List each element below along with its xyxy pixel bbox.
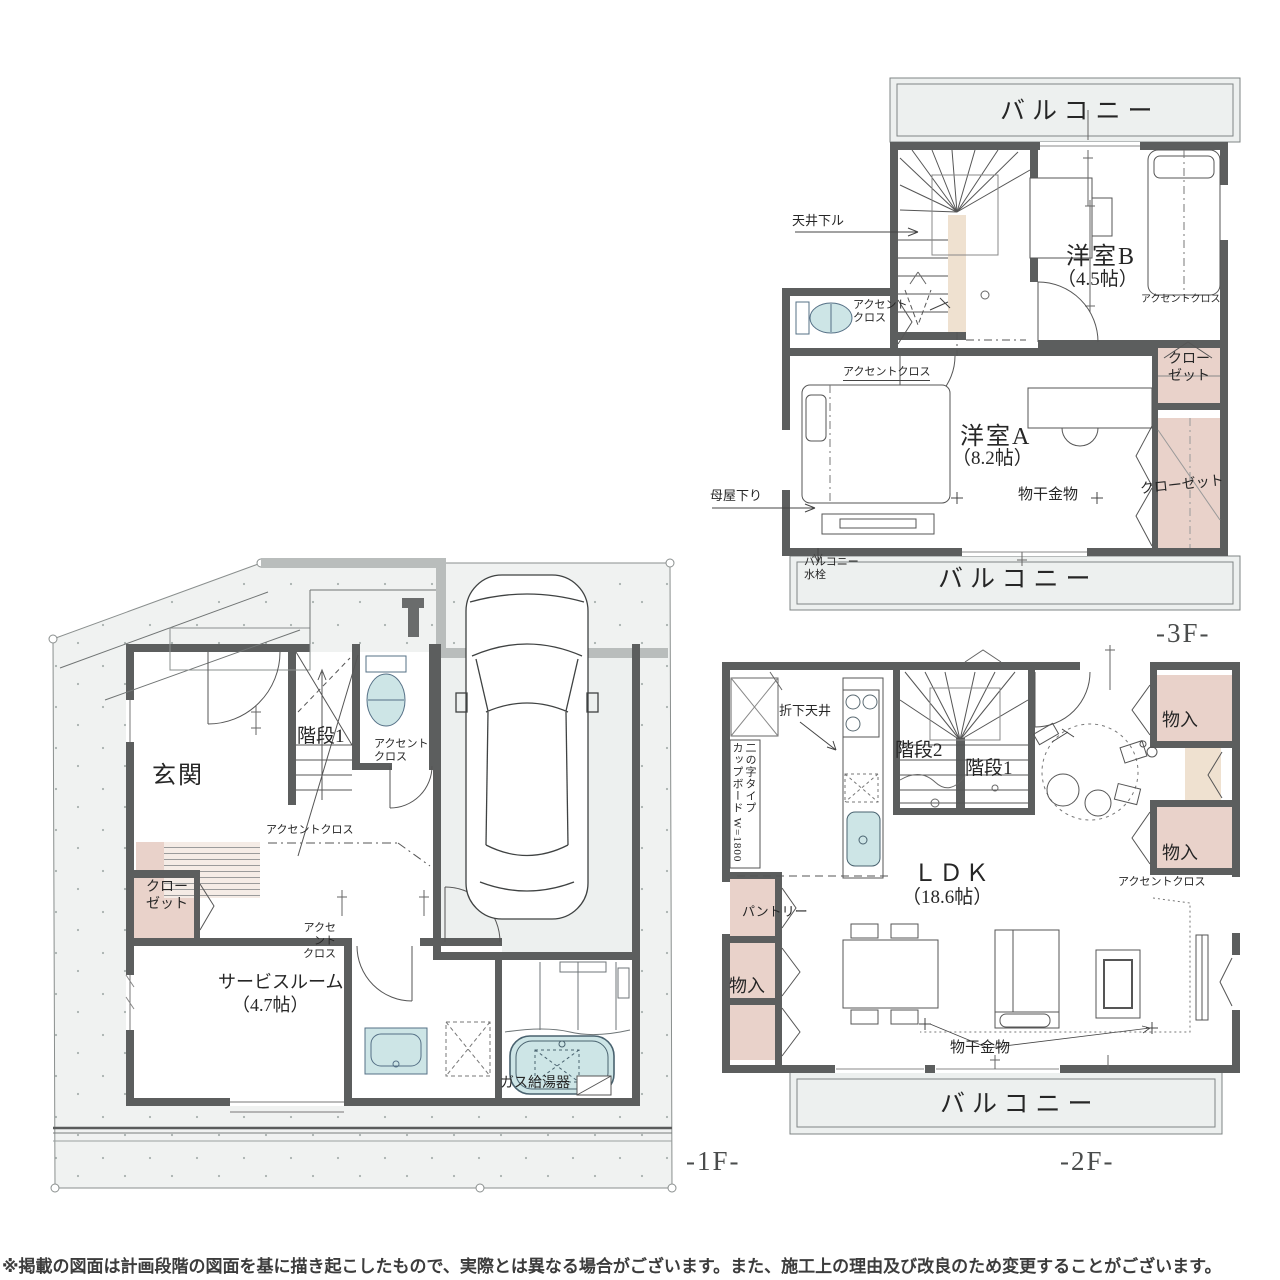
wall-segment bbox=[126, 1098, 640, 1106]
window-gap bbox=[935, 1065, 1060, 1073]
label-yoshitsu-b: 洋室B bbox=[1066, 243, 1136, 271]
label-ldk-size: （18.6帖） bbox=[902, 887, 992, 909]
wall-segment bbox=[352, 644, 360, 770]
wall-segment bbox=[1150, 670, 1157, 748]
label-accent-b: アクセントクロス bbox=[1141, 294, 1221, 306]
wall-segment bbox=[1028, 670, 1035, 815]
label-genkan: 玄関 bbox=[152, 762, 204, 790]
gate-post bbox=[408, 604, 419, 637]
wall-segment bbox=[722, 872, 782, 879]
window-gap bbox=[962, 548, 1087, 556]
label-monohoshi-2f: 物干金物 bbox=[950, 1040, 1010, 1058]
wall-segment bbox=[722, 936, 782, 943]
label-monoire-mr: 物入 bbox=[1162, 843, 1198, 864]
wall-segment bbox=[1038, 340, 1228, 348]
wall-segment bbox=[890, 332, 966, 340]
label-orishita-tenjo: 折下天井 bbox=[779, 703, 831, 718]
wall-segment bbox=[775, 872, 782, 1066]
stair-newel-3f bbox=[948, 215, 966, 332]
room-service-wash bbox=[134, 942, 502, 1102]
label-kaidan1-2f: 階段1 bbox=[965, 758, 1013, 780]
label-ldk: ＬＤＫ bbox=[913, 860, 991, 888]
wall-segment bbox=[288, 644, 296, 805]
window-gap bbox=[835, 1065, 925, 1073]
wall-segment bbox=[893, 808, 1035, 815]
label-kaidan2-2f: 階段2 bbox=[895, 740, 943, 762]
wall-segment bbox=[722, 662, 730, 1072]
label-accent-service-1f: アクセント クロス bbox=[294, 922, 336, 961]
wall-segment bbox=[782, 288, 790, 556]
monoire-left-fill-2 bbox=[730, 1004, 775, 1060]
label-yoshitsu-b-size: （4.5帖） bbox=[1057, 269, 1138, 291]
label-balcony-3f-top: バルコニー bbox=[1000, 97, 1160, 127]
wall-segment bbox=[722, 662, 1240, 670]
label-pantry: パントリー bbox=[742, 904, 808, 919]
floor-plan-page: 玄関 階段1 アクセント クロス アクセントクロス クロー ゼット アクセント … bbox=[0, 0, 1280, 1280]
wall-segment bbox=[1150, 800, 1240, 807]
label-balcony-3f-bottom: バルコニー bbox=[938, 565, 1098, 595]
wall-segment bbox=[433, 644, 441, 960]
wall-segment bbox=[956, 738, 965, 815]
window-gap bbox=[1040, 142, 1140, 150]
wall-segment bbox=[359, 763, 392, 770]
wall-segment bbox=[344, 938, 352, 1106]
wall-segment bbox=[420, 938, 502, 946]
label-monoire-left: 物入 bbox=[729, 976, 765, 997]
window-gap bbox=[782, 430, 790, 490]
floor-tag-2f: -2F- bbox=[1060, 1146, 1115, 1178]
window-gap bbox=[1232, 955, 1240, 1010]
window-gap bbox=[722, 882, 730, 934]
wall-segment bbox=[1150, 868, 1240, 875]
label-yoshitsu-a-size: （8.2帖） bbox=[952, 448, 1033, 470]
wall-segment bbox=[782, 348, 1158, 356]
car bbox=[456, 575, 598, 919]
fence-band-vertical bbox=[436, 558, 446, 658]
window-gap bbox=[126, 700, 134, 742]
wall-segment bbox=[1232, 662, 1240, 1072]
wall-segment bbox=[1152, 345, 1158, 403]
niche-right-fill bbox=[1185, 748, 1221, 800]
label-monoire-tr: 物入 bbox=[1162, 710, 1198, 731]
wall-segment bbox=[441, 952, 640, 960]
label-cupboard: カップボード W=1800二の字タイプ bbox=[730, 742, 756, 872]
label-gas-heater: ガス給湯器 bbox=[500, 1076, 570, 1093]
window-gap bbox=[230, 1098, 344, 1106]
wall-segment bbox=[632, 644, 640, 1106]
label-balcony-2f: バルコニー bbox=[940, 1090, 1100, 1120]
window-gap bbox=[126, 975, 134, 1030]
label-tenjo-sagari: 天井下ル bbox=[792, 213, 844, 228]
floor-tag-3f: -3F- bbox=[1156, 618, 1211, 650]
disclaimer-text: ※掲載の図面は計画段階の図面を基に描き起こしたもので、実際とは異なる場合がござい… bbox=[2, 1252, 1280, 1277]
label-cupboard-col1: カップボード W=1800 bbox=[731, 742, 743, 862]
wall-segment bbox=[1152, 403, 1228, 410]
wall-segment bbox=[126, 870, 200, 878]
label-cupboard-col2: 二の字タイプ bbox=[744, 742, 756, 814]
window-gap bbox=[1220, 185, 1228, 240]
wall-segment bbox=[1150, 741, 1240, 748]
wall-segment bbox=[722, 998, 782, 1005]
label-accent-toilet-3f: アクセント クロス bbox=[853, 299, 907, 325]
wall-segment bbox=[1150, 800, 1157, 875]
label-accent-2f: アクセントクロス bbox=[1118, 876, 1205, 889]
wall-segment bbox=[126, 644, 310, 652]
wall-segment bbox=[1030, 142, 1038, 282]
window-gap bbox=[1232, 877, 1240, 933]
label-monohoshi-3f: 物干金物 bbox=[1018, 487, 1078, 505]
label-closet-tr: クロー ゼット bbox=[1168, 352, 1210, 385]
label-service-room: サービスルーム bbox=[218, 972, 343, 993]
label-moya-sagari: 母屋下り bbox=[710, 488, 762, 503]
garage-floor bbox=[441, 652, 632, 952]
wall-segment bbox=[782, 288, 898, 296]
wall-segment bbox=[194, 870, 200, 946]
label-kaidan1-1f: 階段1 bbox=[297, 726, 345, 748]
label-service-room-size: （4.7帖） bbox=[232, 995, 309, 1016]
fence-band-top bbox=[261, 558, 436, 568]
label-accent-hall-1f: アクセントクロス bbox=[266, 824, 353, 837]
room-stair-yoshitsub bbox=[898, 150, 1220, 348]
floor-tag-1f: -1F- bbox=[686, 1146, 741, 1178]
label-accent-toilet-1f: アクセント クロス bbox=[374, 738, 428, 764]
window-gap bbox=[1080, 662, 1150, 670]
label-balcony-faucet: バルコニー 水栓 bbox=[804, 556, 859, 582]
label-closet-1f: クロー ゼット bbox=[146, 880, 188, 913]
label-accent-a: アクセントクロス bbox=[843, 366, 930, 381]
